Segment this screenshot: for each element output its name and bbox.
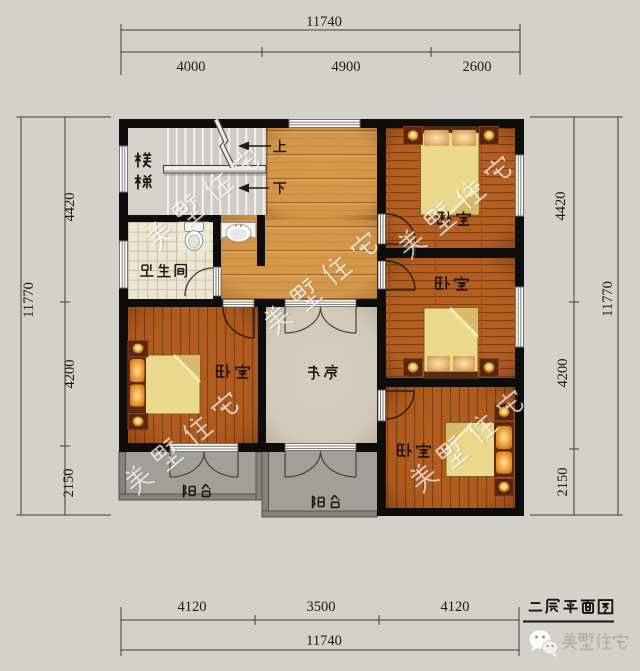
svg-text:11740: 11740 xyxy=(306,14,342,30)
svg-text:4120: 4120 xyxy=(178,599,207,615)
svg-text:4120: 4120 xyxy=(441,599,470,615)
svg-text:11770: 11770 xyxy=(600,281,616,317)
svg-text:4200: 4200 xyxy=(555,359,571,388)
svg-text:4420: 4420 xyxy=(553,192,569,221)
svg-text:4420: 4420 xyxy=(62,193,78,222)
svg-text:4200: 4200 xyxy=(62,360,78,389)
svg-text:4900: 4900 xyxy=(332,59,361,75)
svg-text:4000: 4000 xyxy=(177,59,206,75)
svg-text:2150: 2150 xyxy=(555,468,571,497)
svg-text:3500: 3500 xyxy=(307,599,336,615)
svg-text:2150: 2150 xyxy=(61,469,77,498)
svg-text:11740: 11740 xyxy=(306,633,342,649)
svg-text:2600: 2600 xyxy=(463,59,492,75)
svg-text:11770: 11770 xyxy=(21,282,37,318)
